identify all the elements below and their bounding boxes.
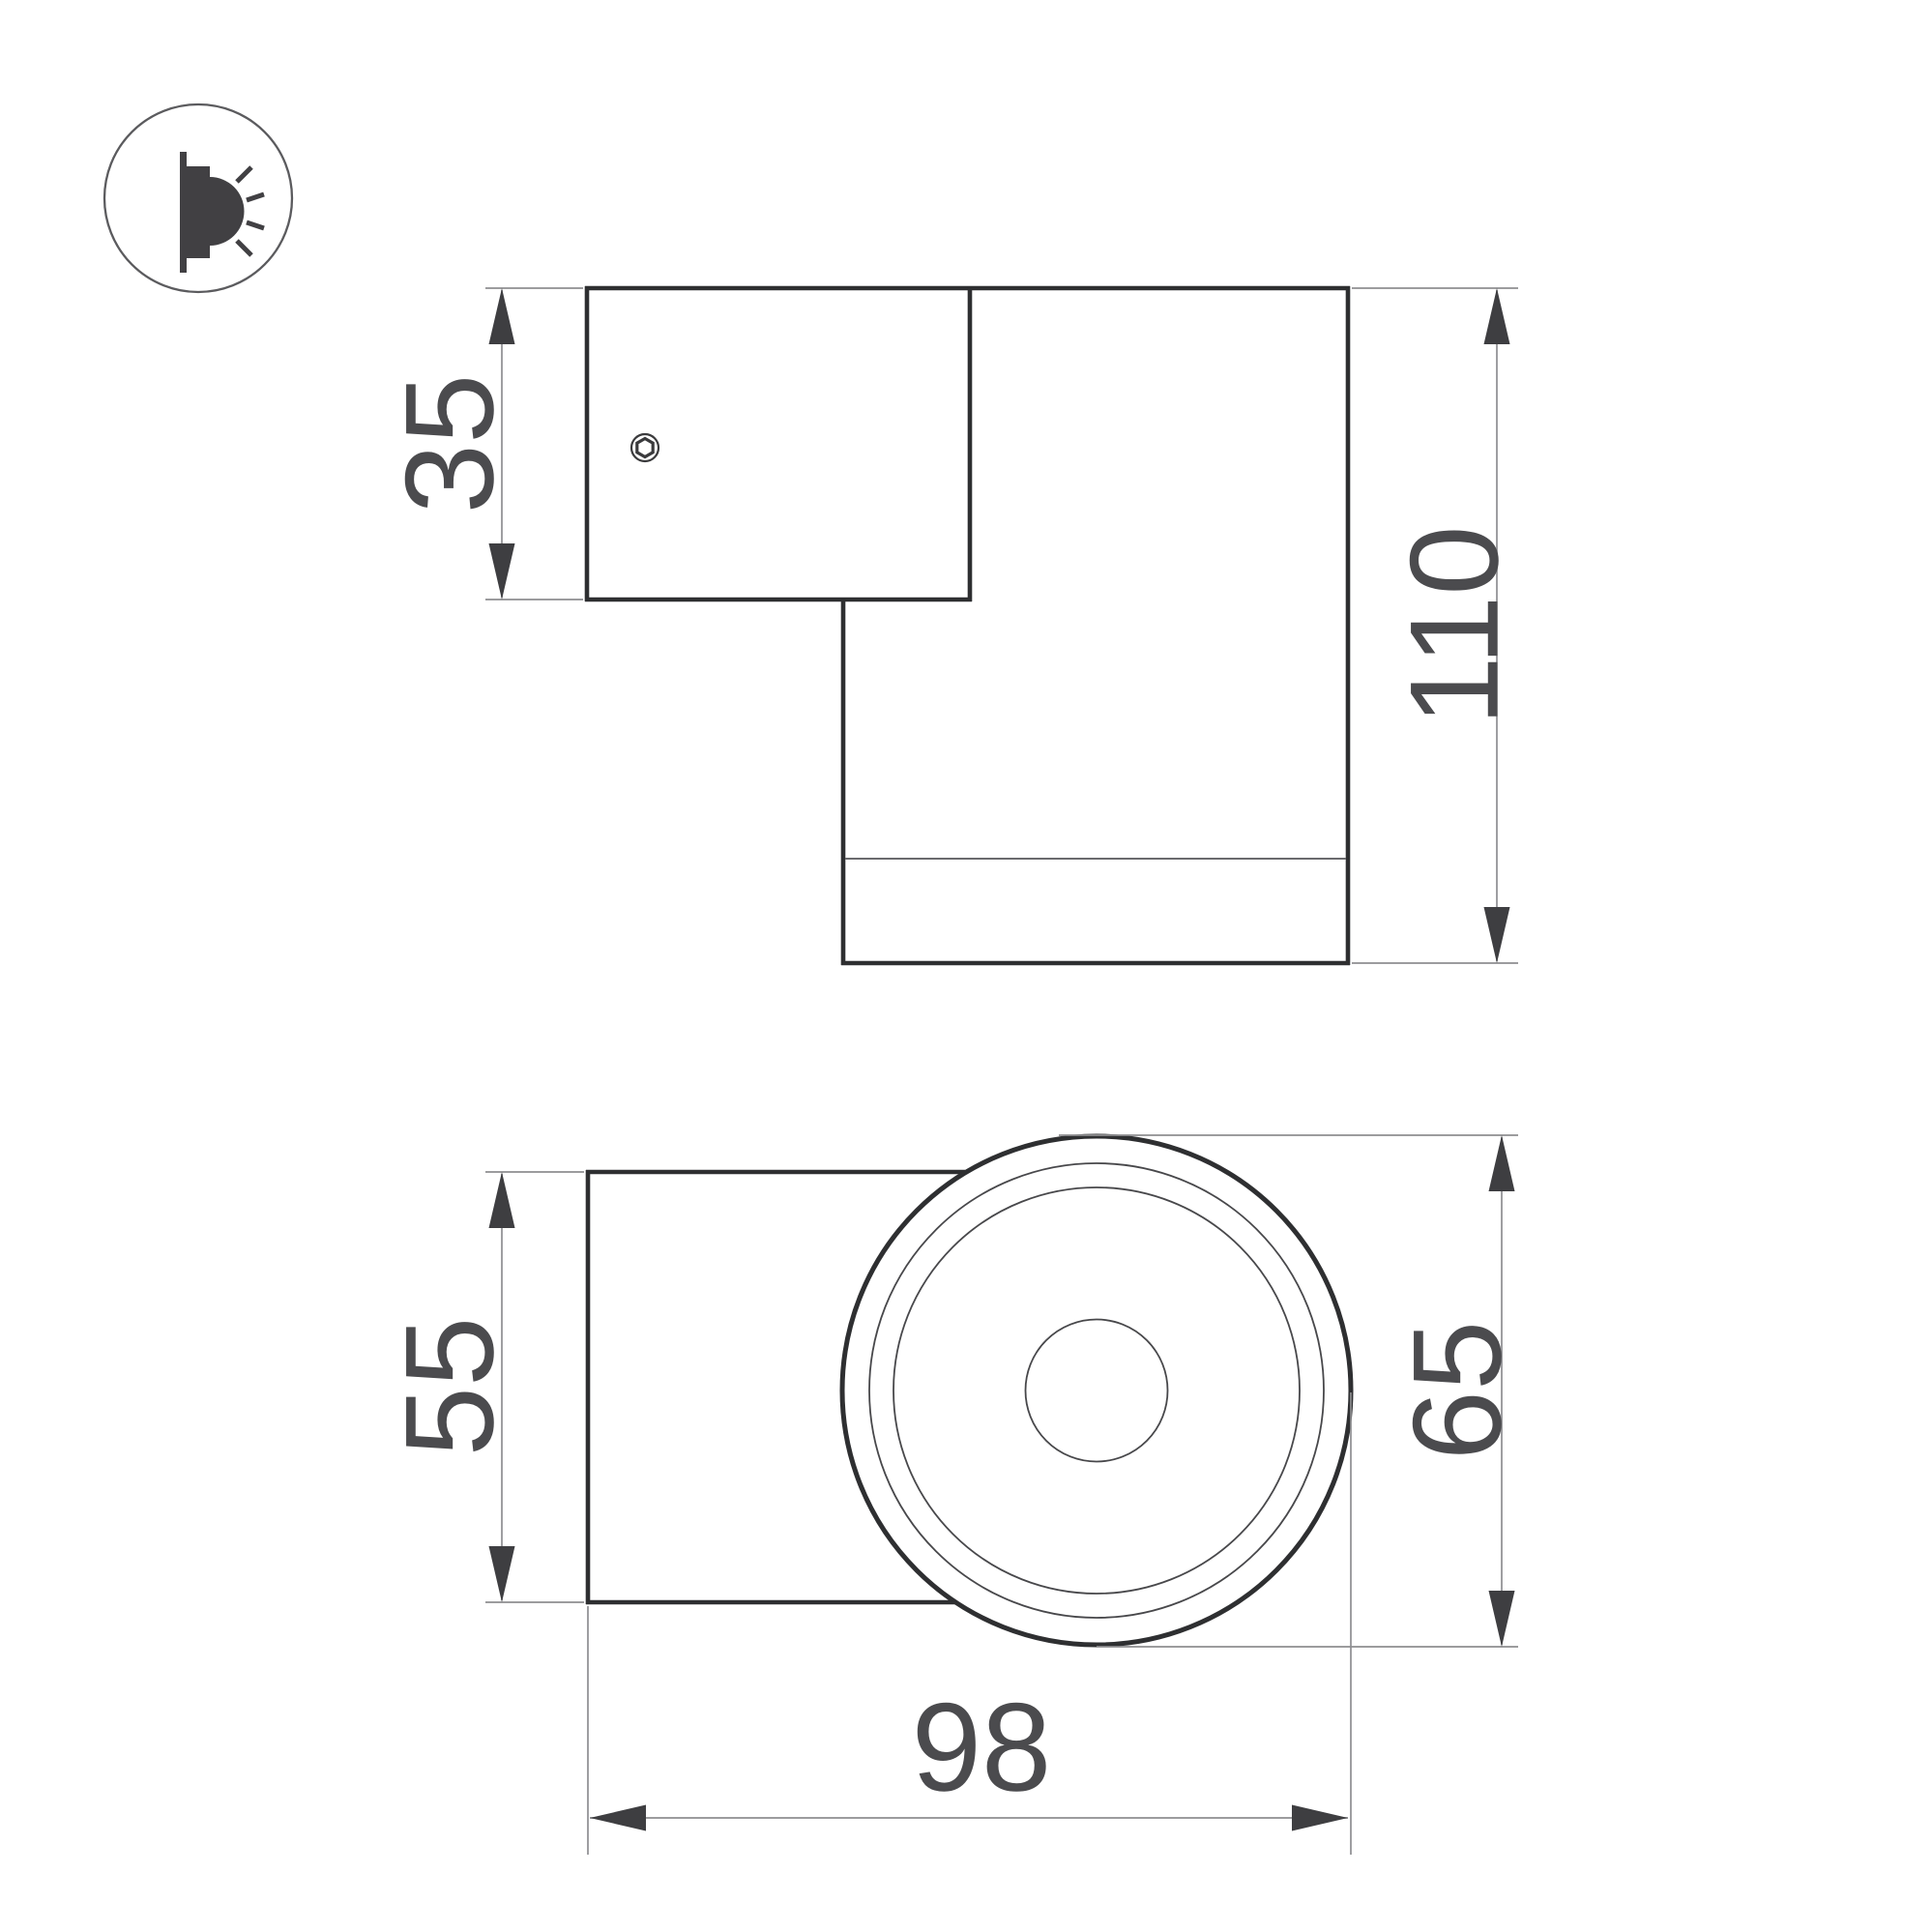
arrow-down xyxy=(1489,1591,1515,1647)
dimension-label-body-diameter: 65 xyxy=(1387,1321,1528,1461)
icon-light-semicircle xyxy=(210,177,245,246)
arrow-up xyxy=(1484,288,1510,344)
dimension-label-body-height: 110 xyxy=(1384,525,1525,725)
side-outline xyxy=(585,286,1350,965)
arrow-up xyxy=(489,288,515,344)
arrow-up xyxy=(1489,1135,1515,1191)
icon-lamp-body xyxy=(187,166,210,258)
icon-wall-line xyxy=(180,152,187,273)
arrow-down xyxy=(489,1546,515,1602)
dimension-label-total-depth: 98 xyxy=(912,1677,1052,1818)
wall-light-icon xyxy=(104,104,292,292)
dimension-label-plate-height: 35 xyxy=(379,374,520,514)
arrow-right xyxy=(1292,1805,1348,1831)
technical-drawing-canvas: 35 110 xyxy=(0,0,1932,1932)
dimension-label-plate-width: 55 xyxy=(379,1317,520,1457)
side-view: 35 110 xyxy=(379,286,1525,965)
arrow-up xyxy=(489,1172,515,1228)
arrow-down xyxy=(489,543,515,600)
dimension-55: 55 xyxy=(379,1172,585,1602)
arrow-down xyxy=(1484,907,1510,963)
front-view: 55 65 98 xyxy=(379,1135,1528,1855)
technical-drawing-page: 35 110 xyxy=(0,0,1932,1932)
dimension-35: 35 xyxy=(379,288,584,600)
hex-socket-screw-icon xyxy=(631,434,659,461)
dimension-110: 110 xyxy=(1352,288,1525,963)
screw-hex-socket xyxy=(637,439,653,457)
arrow-left xyxy=(590,1805,646,1831)
lens-outer-circle xyxy=(842,1136,1351,1645)
